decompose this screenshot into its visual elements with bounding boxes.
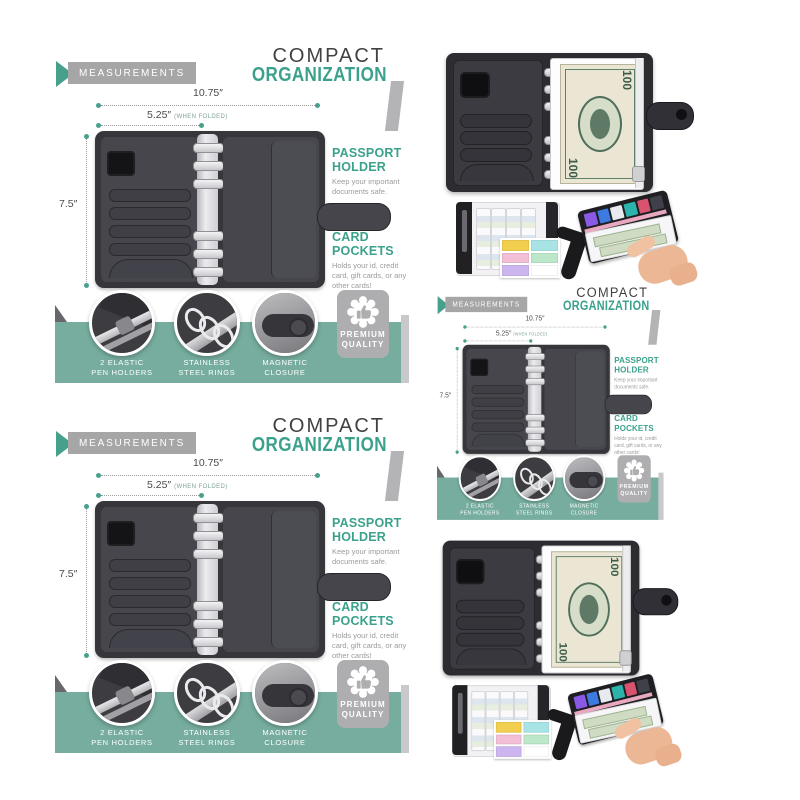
dimension-width-label: 10.75″ [464,314,606,322]
dimension-folded-line [101,125,199,126]
band-end-cap [401,315,409,383]
bill-denomination: 100 [608,557,621,576]
callout-line: MAGNETIC [240,358,330,368]
premium-line: QUALITY [620,490,649,497]
callout-steel-rings: STAINLESS STEEL RINGS [162,728,252,748]
dimension-width-line [101,475,315,476]
feature-card-pockets: CARD POCKETS Holds your id, credit card,… [614,414,668,455]
measurements-infographic: MEASUREMENTS COMPACT ORGANIZATION 10.75″… [55,45,415,383]
magnetic-closure-tab [605,395,652,414]
sticker [496,747,522,757]
feature-caption: Holds your id, credit card, gift cards, … [614,435,668,455]
binder-clasp [107,521,135,546]
binder-ring [193,231,224,241]
binder-spine [197,504,218,655]
feature-heading: CARD POCKETS [332,601,416,628]
dimension-width-line [466,327,603,328]
magnetic-closure-tab [317,573,391,601]
bill-denomination: 100 [557,642,570,661]
steel-rings-photo [174,290,240,356]
card [586,691,600,706]
folded-note: (WHEN FOLDED) [174,114,228,120]
card-slot [109,225,191,238]
feature-passport-holder: PASSPORT HOLDER Keep your important docu… [332,517,416,567]
card [637,198,651,213]
sticker [502,265,529,276]
card [610,205,624,220]
card [573,694,587,709]
curved-pocket [460,164,534,181]
binder-illustration [463,345,610,454]
binder-ring [525,427,545,434]
card-slot [109,207,191,220]
sticker [496,734,522,744]
folded-value: 5.25″ [496,329,511,337]
dimension-height-line [86,508,87,652]
bill-portrait [590,109,610,139]
card-slot [472,385,524,394]
binder-ring [193,619,224,629]
feature-caption: Keep your important documents safe. [332,547,416,567]
sticker [502,240,529,251]
dimension-dot [463,325,466,328]
measurements-badge: MEASUREMENTS [68,432,196,454]
dimension-dot [315,473,320,478]
tile-measurements-bottom-left[interactable]: MEASUREMENTS COMPACT ORGANIZATION 10.75″… [55,415,415,753]
dimension-dot [84,134,89,139]
pen-holders-photo [459,455,501,501]
callout-magnetic-closure: MAGNETIC CLOSURE [240,728,330,748]
card-slot [456,600,524,614]
premium-quality-label: PREMIUM QUALITY [620,483,649,497]
measurements-badge: MEASUREMENTS [68,62,196,84]
curved-pocket [109,629,193,648]
premium-line: PREMIUM [340,700,385,710]
callout-line: 2 ELASTIC [77,358,167,368]
card [597,208,611,223]
dimension-dot [199,493,204,498]
band-end-cap [401,685,409,753]
card [650,195,664,210]
tile-measurements-top-left[interactable]: MEASUREMENTS COMPACT ORGANIZATION 10.75″… [55,45,415,383]
card [624,682,638,697]
folded-note: (WHEN FOLDED) [174,484,228,490]
title-organization: ORGANIZATION [252,64,387,87]
snap-button [661,595,671,606]
binder-ring [193,513,224,523]
card-slot [109,243,191,256]
bill-denomination: 100 [566,158,580,178]
tile-photo-bottom-right[interactable]: 100 100 [437,528,679,766]
zipper-pull [632,166,645,182]
callout-pen-holders: 2 ELASTIC PEN HOLDERS [77,358,167,378]
pen-holders-photo [89,290,155,356]
feature-heading: CARD POCKETS [614,414,668,433]
premium-quality-badge: PREMIUM QUALITY [337,290,389,358]
curved-pocket [472,434,526,447]
premium-line: PREMIUM [340,330,385,340]
measurements-infographic: MEASUREMENTS COMPACT ORGANIZATION 10.75″… [55,415,415,753]
callout-line: PEN HOLDERS [77,368,167,378]
cash-sleeve [471,691,485,751]
band-fold [55,305,67,322]
dimension-dot [199,123,204,128]
hand-holding-binder-photo [543,674,679,765]
binder-clasp [470,359,488,376]
pen-holders-photo [89,660,155,726]
measurements-infographic: MEASUREMENTS COMPACT ORGANIZATION 10.75″… [437,285,667,520]
title-accent-bar [648,310,660,345]
binder-spine [197,134,218,285]
card-slot [109,189,191,202]
dimension-dot [456,450,459,453]
binder-ring [525,378,545,385]
thumbs-up-seal-icon [346,295,380,329]
dimension-dot [463,339,466,342]
dimension-folded-label: 5.25″ (WHEN FOLDED) [147,109,228,121]
feature-passport-holder: PASSPORT HOLDER Keep your important docu… [614,356,668,390]
feature-caption: Keep your important documents safe. [614,377,668,391]
folded-value: 5.25″ [147,109,171,121]
premium-line: QUALITY [340,710,385,720]
dimension-dot [96,103,101,108]
card-slot [109,559,191,572]
tile-photo-top-right[interactable]: 100 100 [440,40,695,285]
snap-button [676,109,687,120]
feature-caption: Holds your id, credit card, gift cards, … [332,631,416,660]
premium-quality-badge: PREMIUM QUALITY [337,660,389,728]
band-fold [55,675,67,692]
band-end-cap [658,473,663,520]
vertical-pocket [271,141,316,278]
binder-ring [525,366,545,373]
sleeves-photo [450,681,558,762]
callout-pen-holders: 2 ELASTIC PEN HOLDERS [451,503,509,517]
title-organization: ORGANIZATION [563,298,649,314]
premium-line: PREMIUM [620,483,649,490]
feature-heading: PASSPORT HOLDER [332,147,416,174]
feature-card-pockets: CARD POCKETS Holds your id, credit card,… [332,601,416,660]
card-slot [472,398,524,407]
dimension-dot [529,339,532,342]
dimension-width-label: 10.75″ [97,457,319,469]
card [636,678,650,693]
dimension-dot [315,103,320,108]
binder-spine [528,347,541,452]
binder-ring [525,353,545,360]
card [623,202,637,217]
hand-holding-binder-photo [552,190,695,284]
feature-caption: Keep your important documents safe. [332,177,416,197]
binder-illustration [95,131,325,288]
dimension-height-line [86,138,87,282]
dimension-folded-label: 5.25″ (WHEN FOLDED) [147,479,228,491]
binder-clasp [456,559,485,584]
dimension-dot [96,123,101,128]
cash-sleeve [476,208,491,270]
binder-ring [193,161,224,171]
steel-rings-photo [174,660,240,726]
feature-heading: PASSPORT HOLDER [332,517,416,544]
dimension-dot [456,347,459,350]
thumbs-up-seal-icon [623,459,645,483]
binder-ring [193,249,224,259]
card-slot [460,114,532,128]
bill-denomination: 100 [620,70,634,90]
feature-caption: Holds your id, credit card, gift cards, … [332,261,416,290]
sticker [502,253,529,264]
sticker [496,722,522,732]
card-slot [460,131,532,145]
thumbs-up-seal-icon [346,665,380,699]
magnetic-closure-tab [317,203,391,231]
feature-heading: CARD POCKETS [332,231,416,258]
hundred-dollar-bill: 100 100 [560,64,640,184]
callout-line: PEN HOLDERS [451,510,509,517]
callout-line: STEEL RINGS [162,368,252,378]
hundred-dollar-bill: 100 100 [551,551,627,667]
feature-passport-holder: PASSPORT HOLDER Keep your important docu… [332,147,416,197]
dimension-dot [84,653,89,658]
binder-ring [193,531,224,541]
title-accent-bar [385,81,404,131]
dimension-dot [96,493,101,498]
binder-ring [193,267,224,277]
callout-steel-rings: STAINLESS STEEL RINGS [162,358,252,378]
band-fold [437,466,445,478]
card-slot [109,595,191,608]
snap-button-icon [289,688,308,707]
callout-line: 2 ELASTIC [451,503,509,510]
callout-line: STEEL RINGS [162,738,252,748]
callout-line: PEN HOLDERS [77,738,167,748]
snap-button-icon [289,318,308,337]
zipper-pull [619,650,631,666]
pen [462,210,467,252]
callout-magnetic-closure: MAGNETIC CLOSURE [555,503,613,517]
dimension-dot [84,504,89,509]
binder-illustration [95,501,325,658]
magnetic-closure-photo [563,455,605,501]
card-slot [109,613,191,626]
dimension-width-label: 10.75″ [97,87,319,99]
vertical-pocket [575,352,604,447]
feature-card-pockets: CARD POCKETS Holds your id, credit card,… [332,231,416,290]
callout-line: CLOSURE [555,510,613,517]
binder-ring [525,439,545,446]
dimension-width-line [101,105,315,106]
feature-heading: PASSPORT HOLDER [614,356,668,375]
curved-pocket [109,259,193,278]
title-organization: ORGANIZATION [252,434,387,457]
callout-line: STAINLESS [162,728,252,738]
callout-line: MAGNETIC [555,503,613,510]
dimension-dot [84,283,89,288]
product-photo: 100 100 [440,40,695,285]
binder-ring [193,549,224,559]
sticker-labels-grid [500,238,560,278]
tile-measurements-middle-right[interactable]: MEASUREMENTS COMPACT ORGANIZATION 10.75″… [437,285,667,520]
product-photo: 100 100 [437,528,679,766]
product-image-collage: MEASUREMENTS COMPACT ORGANIZATION 10.75″… [0,0,800,800]
dimension-dot [96,473,101,478]
card-slot [472,410,524,419]
folded-value: 5.25″ [147,479,171,491]
dimension-height-label: 7.5″ [59,568,77,580]
callout-line: CLOSURE [240,368,330,378]
callout-magnetic-closure: MAGNETIC CLOSURE [240,358,330,378]
binder-ring [193,179,224,189]
binder-clasp [107,151,135,176]
binder-ring [525,414,545,421]
premium-quality-badge: PREMIUM QUALITY [617,455,650,502]
steel-rings-photo [513,455,555,501]
magnetic-closure-tab [646,102,694,130]
bill-portrait [580,595,599,624]
measurements-badge: MEASUREMENTS [445,297,527,312]
magnetic-closure-photo [252,290,318,356]
dimension-folded-line [466,341,529,342]
magnetic-closure-photo [252,660,318,726]
snap-button-icon [587,475,599,488]
premium-quality-label: PREMIUM QUALITY [340,700,385,720]
card [599,688,613,703]
card-slot [456,616,524,630]
card [611,685,625,700]
dimension-folded-line [101,495,199,496]
binder-ring [193,601,224,611]
callout-line: STAINLESS [162,358,252,368]
premium-line: QUALITY [340,340,385,350]
binder-clasp [460,72,490,98]
binder-ring [193,143,224,153]
sleeves-photo [454,198,568,282]
dimension-height-label: 7.5″ [59,198,77,210]
folded-note: (WHEN FOLDED) [513,333,547,337]
callout-line: CLOSURE [240,738,330,748]
premium-quality-label: PREMIUM QUALITY [340,330,385,350]
callout-pen-holders: 2 ELASTIC PEN HOLDERS [77,728,167,748]
pen [458,693,463,734]
dimension-dot [603,325,606,328]
card [584,212,598,227]
dimension-height-line [457,350,458,450]
card-slot [456,633,524,647]
callout-line: 2 ELASTIC [77,728,167,738]
callout-line: MAGNETIC [240,728,330,738]
card-slot [460,148,532,162]
title-accent-bar [385,451,404,501]
card-slot [109,577,191,590]
binder-ring [193,637,224,647]
dimension-height-label: 7.5″ [440,391,452,399]
card-slot [472,423,524,432]
curved-pocket [456,648,526,664]
vertical-pocket [271,511,316,648]
dimension-folded-label: 5.25″ (WHEN FOLDED) [496,329,548,337]
